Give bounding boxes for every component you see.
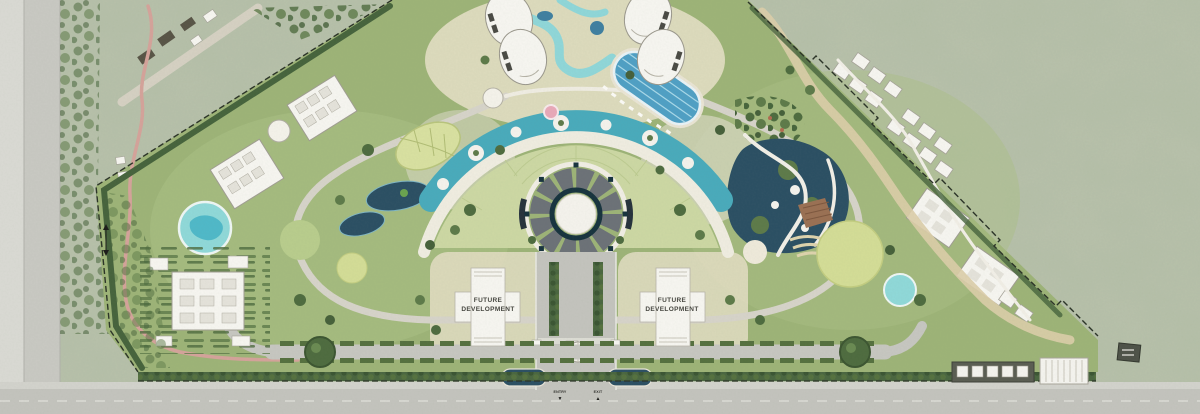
masterplan-image: ENTRY ▼ EXIT ▲ FUTURE DEVELOPMENT FUTURE… — [0, 0, 1200, 414]
masterplan-svg: ENTRY ▼ EXIT ▲ FUTURE DEVELOPMENT FUTURE… — [0, 0, 1200, 414]
paper-grain — [0, 0, 1200, 414]
